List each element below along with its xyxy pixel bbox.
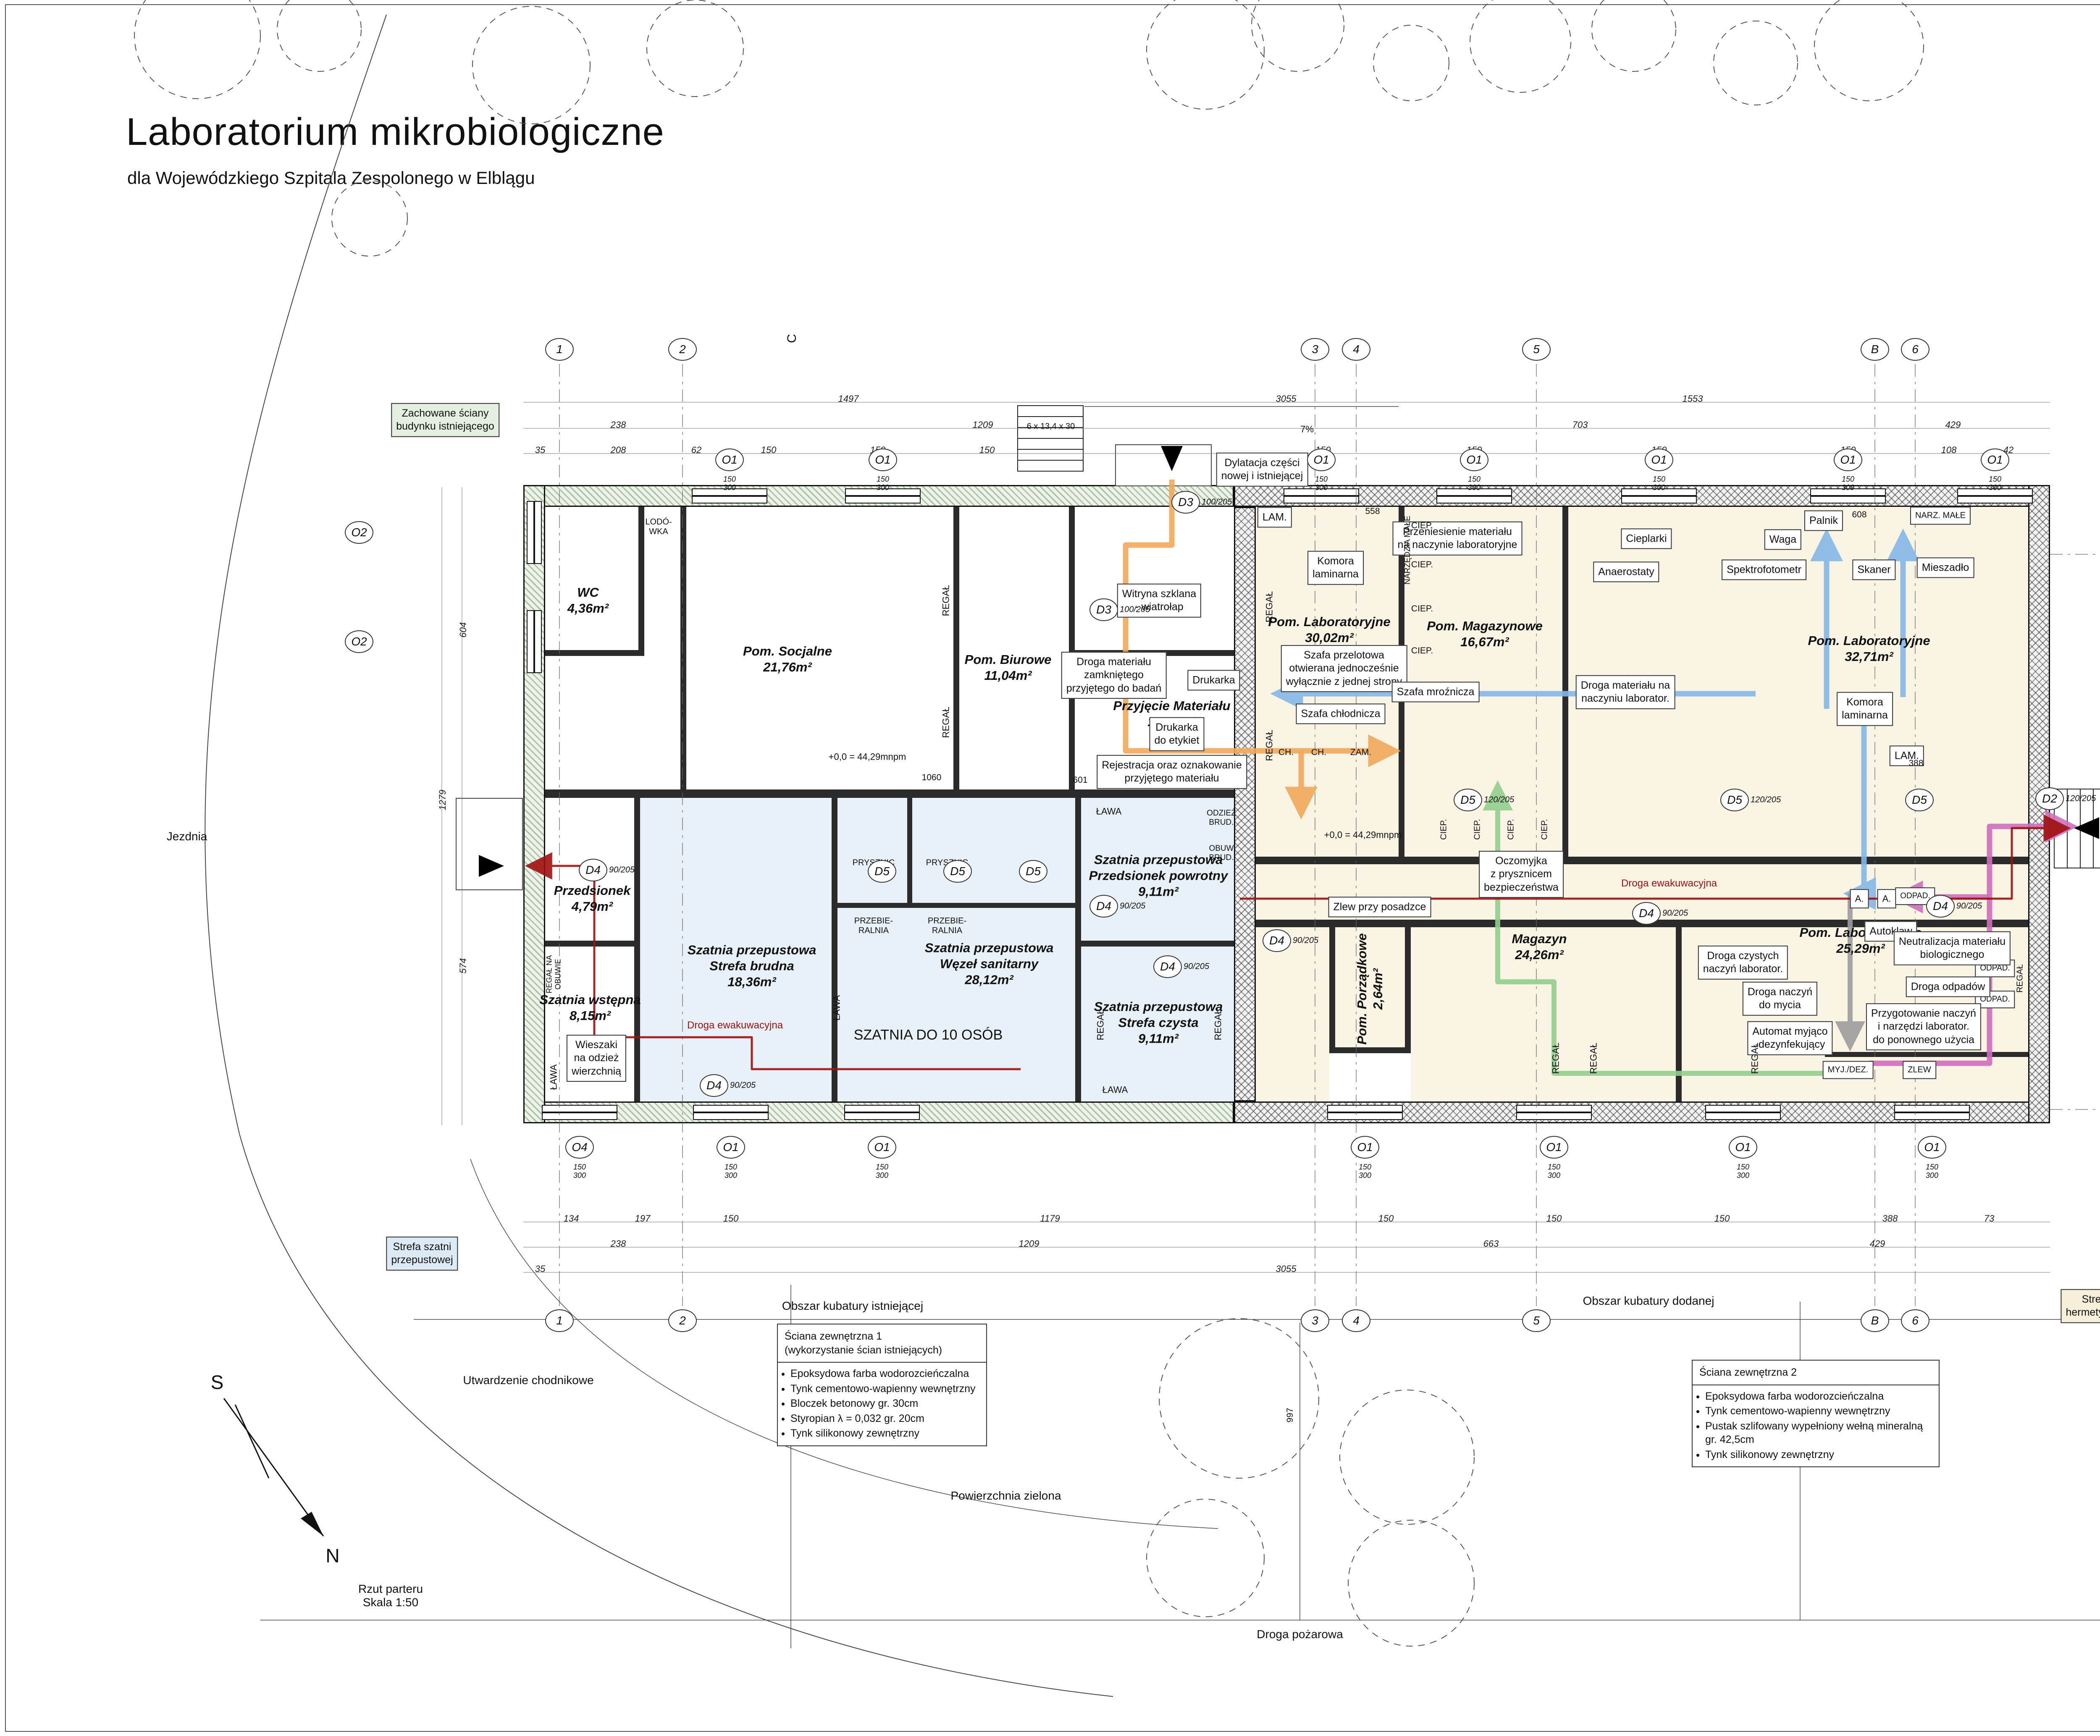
note-bullet: Tynk silikonowy zewnętrzny bbox=[790, 1427, 983, 1440]
partition bbox=[545, 650, 644, 656]
note2-title: Ściana zewnętrzna 2 bbox=[1693, 1361, 1939, 1385]
sheet: Laboratorium mikrobiologiczne dla Wojewó… bbox=[0, 0, 2100, 1736]
door-tag-D5: D5 bbox=[1454, 789, 1482, 811]
plan-label: PRZEBIE- RALNIA bbox=[854, 916, 893, 936]
plan-label: CIEP. bbox=[1411, 604, 1433, 614]
window-size: 150 300 bbox=[1315, 475, 1328, 492]
door-tag-D5: D5 bbox=[868, 860, 896, 883]
window-tag-O1: O1 bbox=[868, 1136, 896, 1159]
plan-label: ŁAWA bbox=[1096, 806, 1122, 816]
window-size: 150 300 bbox=[1842, 475, 1854, 492]
partition bbox=[953, 507, 959, 789]
room-wc bbox=[545, 507, 638, 655]
axis-6-top: 6 bbox=[1901, 338, 1929, 361]
note1-bullets: Epoksydowa farba wodorozcieńczalnaTynk c… bbox=[790, 1367, 983, 1440]
plan-label: ŁAWA bbox=[548, 1065, 559, 1090]
dimension: 150 bbox=[761, 445, 777, 456]
dimension: 134 bbox=[564, 1213, 579, 1224]
callout: A. bbox=[1877, 889, 1896, 908]
window-tag-O1: O1 bbox=[1729, 1136, 1757, 1159]
door-size: 90/205 bbox=[1120, 902, 1145, 911]
door-tag-D5: D5 bbox=[943, 860, 972, 883]
callout: A. bbox=[1850, 889, 1869, 908]
callout: Droga naczyń do mycia bbox=[1743, 982, 1817, 1016]
callout: Komora laminarna bbox=[1307, 551, 1364, 585]
plan-label: ŁAWA bbox=[1102, 1084, 1128, 1095]
partition bbox=[1075, 798, 1081, 1101]
door-size: 90/205 bbox=[1662, 909, 1688, 918]
dimension: 3055 bbox=[1276, 1264, 1297, 1274]
plan-label: 1060 bbox=[922, 773, 942, 783]
plan-label: Jezdnia bbox=[167, 830, 207, 843]
plan-label: Obszar kubatury istniejącej bbox=[782, 1299, 923, 1313]
callout: Anaerostaty bbox=[1593, 561, 1659, 582]
partition bbox=[1069, 507, 1075, 789]
dimension: 238 bbox=[611, 1238, 626, 1249]
window-tag-O1: O1 bbox=[1918, 1136, 1946, 1159]
plan-label: Droga ewakuwacyjna bbox=[1621, 878, 1717, 889]
callout: Palnik bbox=[1804, 510, 1843, 531]
partition bbox=[638, 507, 644, 655]
plan-label: REGAŁ bbox=[1588, 1043, 1599, 1074]
callout: Oczomyjka z prysznicem bezpieczeństwa bbox=[1479, 851, 1564, 898]
plan-label: PRZEBIE- RALNIA bbox=[928, 916, 966, 936]
callout: NARZ. MAŁE bbox=[1910, 507, 1971, 525]
note-bullet: Epoksydowa farba wodorozcieńczalna bbox=[790, 1367, 983, 1381]
room-label: Szatnia przepustowa Strefa czysta 9,11m² bbox=[1094, 999, 1223, 1046]
dimension: 150 bbox=[1378, 1213, 1394, 1224]
note-sciana-zewnetrzna-2: Ściana zewnętrzna 2 Epoksydowa farba wod… bbox=[1692, 1360, 1940, 1467]
window bbox=[527, 501, 542, 564]
room-label: Pom. Magazynowe 16,67m² bbox=[1427, 618, 1543, 650]
note-bullet: Styropian λ = 0,032 gr. 20cm bbox=[790, 1412, 983, 1426]
page-subtitle: dla Wojewódzkiego Szpitala Zespolonego w… bbox=[127, 168, 535, 188]
window-tag-O1: O1 bbox=[869, 448, 897, 471]
plan-label: 997 bbox=[1285, 1408, 1295, 1422]
partition bbox=[1405, 927, 1411, 1053]
plan-label: CIEP. bbox=[1411, 560, 1433, 570]
window bbox=[844, 1105, 920, 1120]
window-tag-O1: O1 bbox=[1981, 448, 2009, 471]
window-size: 150 300 bbox=[876, 1163, 888, 1180]
plan-label: CIEP. bbox=[1411, 521, 1433, 531]
callout: Strefa hermetyczna bbox=[2061, 1289, 2100, 1323]
axis-1-top: 1 bbox=[545, 338, 574, 361]
plan-label: CIEP. bbox=[1473, 819, 1483, 840]
note1-title: Ściana zewnętrzna 1 (wykorzystanie ścian… bbox=[778, 1324, 986, 1363]
partition bbox=[1329, 1047, 1411, 1053]
axis-5-top: 5 bbox=[1522, 338, 1551, 361]
partition bbox=[1825, 1052, 2028, 1057]
door-size: 120/205 bbox=[1484, 795, 1514, 805]
room-korytarz-poludnie bbox=[1256, 927, 1329, 1101]
window bbox=[542, 1105, 617, 1120]
callout: Automat myjąco -dezynfekujący bbox=[1747, 1021, 1832, 1055]
window-tag-O4: O4 bbox=[565, 1136, 594, 1159]
window-tag-O2: O2 bbox=[345, 521, 373, 544]
room-label: Szatnia przepustowa Przedsionek powrotny… bbox=[1089, 852, 1228, 899]
plan-label: REGAŁ bbox=[1749, 1043, 1760, 1074]
window bbox=[527, 610, 542, 673]
window-size: 150 300 bbox=[1737, 1163, 1749, 1180]
room-label: Pom. Biurowe 11,04m² bbox=[965, 652, 1052, 684]
note-bullet: Pustak szlifowany wypełniony wełną miner… bbox=[1705, 1419, 1935, 1447]
door-size: 90/205 bbox=[1956, 902, 1982, 911]
window bbox=[1894, 1105, 1970, 1120]
window bbox=[693, 1105, 769, 1120]
plan-label: REGAŁ bbox=[1264, 591, 1274, 623]
plan-label: OBUW BRUD. bbox=[1209, 844, 1234, 863]
dimension: 388 bbox=[1882, 1213, 1898, 1224]
plan-label: CH. bbox=[1311, 747, 1326, 758]
door-tag-D4: D4 bbox=[700, 1074, 728, 1097]
note-bullet: Bloczek betonowy gr. 30cm bbox=[790, 1397, 983, 1411]
room-pom-biurowe bbox=[959, 507, 1069, 789]
partition bbox=[1075, 941, 1234, 947]
stairs-top bbox=[1017, 405, 1084, 472]
window-tag-O1: O1 bbox=[1307, 448, 1336, 471]
window bbox=[1516, 1105, 1592, 1120]
door-tag-D4: D4 bbox=[1153, 955, 1182, 978]
plan-label: REGAŁ bbox=[2016, 964, 2025, 993]
plan-label: 608 bbox=[1852, 510, 1866, 520]
axis-2-top: 2 bbox=[668, 338, 697, 361]
callout: Waga bbox=[1764, 529, 1801, 550]
room-label: Szatnia przepustowa Węzeł sanitarny 28,1… bbox=[925, 940, 1054, 987]
window-tag-O1: O1 bbox=[1645, 448, 1673, 471]
window-tag-O1: O1 bbox=[1540, 1136, 1568, 1159]
partition bbox=[1329, 927, 1335, 1053]
partition bbox=[545, 941, 640, 947]
partition bbox=[1562, 507, 1568, 864]
callout: MYJ./DEZ. bbox=[1823, 1061, 1874, 1079]
section-mark-C: C bbox=[785, 334, 800, 343]
callout: Komora laminarna bbox=[1837, 692, 1893, 726]
plan-label: CH. bbox=[1278, 747, 1294, 758]
plan-label: ODZIEŻ BRUD. bbox=[1207, 809, 1236, 827]
callout: Szafa chłodnicza bbox=[1296, 703, 1385, 724]
axis-4-top: 4 bbox=[1342, 338, 1370, 361]
note-bullet: Tynk cementowo-wapienny wewnętrzny bbox=[1705, 1404, 1935, 1418]
plan-label: REGAŁ bbox=[1213, 1009, 1223, 1041]
callout: Szafa mroźnicza bbox=[1392, 682, 1480, 702]
plan-label: 7% bbox=[1300, 424, 1314, 434]
callout: Neutralizacja materiału biologicznego bbox=[1894, 931, 2011, 965]
window-size: 150 300 bbox=[723, 475, 736, 492]
plan-label: 601 bbox=[1073, 775, 1087, 785]
door-tag-D4: D4 bbox=[1263, 929, 1291, 952]
plan-label: 388 bbox=[1908, 758, 1923, 768]
axis-B-bottom: B bbox=[1861, 1309, 1889, 1332]
partition bbox=[837, 903, 1075, 908]
plan-label: CIEP. bbox=[1507, 819, 1516, 840]
dimension: 429 bbox=[1945, 420, 1961, 430]
plan-label: REGAŁ bbox=[1095, 1009, 1105, 1041]
plan-label: REGAŁ bbox=[940, 707, 951, 738]
partition bbox=[634, 798, 640, 1101]
dimension: 35 bbox=[535, 445, 545, 456]
door-size: 100/205 bbox=[1202, 498, 1232, 507]
door-tag-D3: D3 bbox=[1089, 598, 1118, 621]
dimension: 62 bbox=[691, 445, 701, 456]
callout: Droga materiału zamkniętego przyjętego d… bbox=[1061, 652, 1167, 699]
callout: Skaner bbox=[1852, 559, 1895, 580]
door-tag-D4: D4 bbox=[579, 859, 607, 881]
partition bbox=[1676, 927, 1682, 1101]
plan-label: Droga pożarowa bbox=[1257, 1628, 1343, 1641]
plan-label: 6 x 13,4 x 30 bbox=[1027, 422, 1075, 432]
dimension: 1497 bbox=[838, 393, 859, 404]
callout: Zachowane ściany budynku istniejącego bbox=[391, 403, 499, 437]
plan-label: CIEP. bbox=[1439, 819, 1449, 840]
vestibule-wiatrolap bbox=[1115, 444, 1212, 486]
plan-label: CIEP. bbox=[1411, 646, 1433, 656]
dimension: 150 bbox=[723, 1213, 739, 1224]
dimension: 197 bbox=[635, 1213, 651, 1224]
door-size: 90/205 bbox=[730, 1081, 756, 1091]
plan-label: REGAŁ bbox=[1550, 1043, 1561, 1074]
wall bbox=[523, 485, 545, 1123]
callout: Przygotowanie naczyń i narzędzi laborato… bbox=[1866, 1003, 1981, 1050]
room-label: Magazyn 24,26m² bbox=[1512, 931, 1567, 963]
axis-1-bottom: 1 bbox=[545, 1309, 574, 1332]
callout: Rejestracja oraz oznakowanie przyjętego … bbox=[1097, 755, 1247, 789]
dimension: 150 bbox=[1546, 1213, 1562, 1224]
callout: Zlew przy posadzce bbox=[1328, 897, 1431, 917]
room-label: Pom. Laboratoryjne 32,71m² bbox=[1808, 633, 1930, 665]
page-title: Laboratorium mikrobiologiczne bbox=[126, 110, 664, 154]
plan-label: REGAŁ NA OBUWIE bbox=[545, 955, 562, 993]
note-sciana-zewnetrzna-1: Ściana zewnętrzna 1 (wykorzystanie ścian… bbox=[777, 1324, 987, 1446]
door-tag-D2: D2 bbox=[2035, 787, 2064, 810]
callout: Szafa przelotowa otwierana jednocześnie … bbox=[1281, 645, 1407, 692]
plan-label: N bbox=[325, 1545, 339, 1567]
plan-label: Droga ewakuwacyjna bbox=[687, 1020, 783, 1031]
door-size: 90/205 bbox=[609, 865, 635, 875]
door-size: 100/205 bbox=[1120, 605, 1150, 615]
window-size: 150 300 bbox=[877, 475, 889, 492]
dimension: 574 bbox=[458, 958, 469, 974]
plan-label: Powierzchnia zielona bbox=[950, 1489, 1061, 1503]
window-size: 150 300 bbox=[724, 1163, 737, 1180]
window-size: 150 300 bbox=[1468, 475, 1480, 492]
axis-4-bottom: 4 bbox=[1342, 1309, 1370, 1332]
door-tag-D3: D3 bbox=[1171, 491, 1200, 514]
note-bullet: Tynk cementowo-wapienny wewnętrzny bbox=[790, 1382, 983, 1396]
plan-label: Rzut parteru Skala 1:50 bbox=[358, 1582, 423, 1609]
callout: Spektrofotometr bbox=[1722, 559, 1806, 580]
callout: Droga czystych naczyń laborator. bbox=[1698, 946, 1788, 980]
room-label: Pom. Laboratoryjne 30,02m² bbox=[1268, 614, 1390, 646]
callout: Cieplarki bbox=[1621, 528, 1672, 549]
dimension: 150 bbox=[979, 445, 995, 456]
plan-label: SZATNIA DO 10 OSÓB bbox=[854, 1027, 1003, 1043]
partition bbox=[680, 507, 686, 789]
window bbox=[1327, 1105, 1403, 1120]
axis-3-top: 3 bbox=[1301, 338, 1329, 361]
door-tag-D4: D4 bbox=[1089, 895, 1118, 918]
axis-5-bottom: 5 bbox=[1522, 1309, 1551, 1332]
dimension: 208 bbox=[611, 445, 626, 456]
dimension: 1279 bbox=[437, 790, 448, 810]
axis-6-bottom: 6 bbox=[1901, 1309, 1929, 1332]
room-label: WC 4,36m² bbox=[567, 585, 609, 616]
window-tag-O2: O2 bbox=[345, 630, 373, 653]
room-label: Pom. Porządkowe 2,64m² bbox=[1354, 933, 1386, 1044]
room-label: Szatnia wstępna 8,15m² bbox=[539, 992, 640, 1024]
dimension: 3055 bbox=[1276, 393, 1297, 404]
room-label: Przedsionek 4,79m² bbox=[554, 883, 631, 915]
plan-label: NARZĘDZIA MAŁE bbox=[1403, 516, 1412, 585]
dimension: 604 bbox=[458, 622, 469, 638]
callout: Mieszadło bbox=[1917, 557, 1974, 578]
door-tag-D4: D4 bbox=[1926, 895, 1955, 918]
window-tag-O1: O1 bbox=[1834, 448, 1862, 471]
wall bbox=[1234, 507, 1256, 1101]
entrance-platform bbox=[456, 798, 523, 890]
dimension: 238 bbox=[611, 420, 626, 430]
partition bbox=[1256, 857, 2028, 864]
door-size: 120/205 bbox=[2066, 794, 2096, 804]
dimension: 73 bbox=[1984, 1213, 1994, 1224]
plan-label: Obszar kubatury dodanej bbox=[1583, 1294, 1714, 1308]
plan-label: REGAŁ bbox=[1264, 730, 1274, 761]
plan-label: CIEP. bbox=[1540, 819, 1550, 840]
dimension: 1209 bbox=[973, 420, 993, 430]
callout: Droga odpadów bbox=[1906, 976, 1990, 997]
axis-3-bottom: 3 bbox=[1301, 1309, 1329, 1332]
dimension: 663 bbox=[1483, 1238, 1499, 1249]
callout: LAM. bbox=[1257, 507, 1292, 527]
partition bbox=[545, 789, 1234, 798]
plan-label: ŁAWA bbox=[831, 995, 842, 1021]
callout: Droga materiału na naczyniu laborator. bbox=[1576, 675, 1675, 709]
window-size: 150 300 bbox=[573, 1163, 586, 1180]
door-tag-D4: D4 bbox=[1632, 902, 1661, 925]
dimension: 1553 bbox=[1683, 393, 1703, 404]
dimension: 108 bbox=[1941, 445, 1957, 456]
axis-B-top: B bbox=[1861, 338, 1889, 361]
window-size: 150 300 bbox=[1653, 475, 1665, 492]
window-tag-O1: O1 bbox=[715, 448, 744, 471]
window-size: 150 300 bbox=[1548, 1163, 1560, 1180]
dimension: 35 bbox=[535, 1264, 545, 1274]
plan-label: +0,0 = 44,29mnpm bbox=[1324, 829, 1402, 840]
window bbox=[1705, 1105, 1781, 1120]
callout: ZLEW bbox=[1903, 1061, 1936, 1079]
plan-label: LODÓ- WKA bbox=[645, 517, 672, 537]
partition bbox=[907, 798, 912, 903]
plan-label: Utwardzenie chodnikowe bbox=[463, 1374, 593, 1387]
window-tag-O1: O1 bbox=[717, 1136, 745, 1159]
window-tag-O1: O1 bbox=[1460, 448, 1488, 471]
dimension: 703 bbox=[1572, 420, 1588, 430]
door-tag-D5: D5 bbox=[1019, 860, 1047, 883]
plan-label: +0,0 = 44,29mnpm bbox=[829, 751, 906, 762]
window-size: 150 300 bbox=[1926, 1163, 1938, 1180]
window-tag-O1: O1 bbox=[1351, 1136, 1379, 1159]
door-tag-D5: D5 bbox=[1905, 789, 1934, 811]
plan-label: REGAŁ bbox=[940, 585, 951, 616]
note-bullet: Tynk silikonowy zewnętrzny bbox=[1705, 1448, 1935, 1462]
window-size: 150 300 bbox=[1359, 1163, 1371, 1180]
room-wiatrolap bbox=[1075, 507, 1234, 650]
door-tag-D5: D5 bbox=[1720, 789, 1749, 811]
plan-label: S bbox=[211, 1371, 224, 1394]
callout: Strefa szatni przepustowej bbox=[386, 1237, 458, 1271]
partition bbox=[832, 798, 837, 1101]
dimension: 150 bbox=[1714, 1213, 1730, 1224]
dimension: 1179 bbox=[1040, 1213, 1060, 1224]
axis-2-bottom: 2 bbox=[668, 1309, 697, 1332]
callout: Drukarka do etykiet bbox=[1149, 717, 1204, 751]
door-size: 120/205 bbox=[1751, 795, 1781, 805]
callout: Dylatacja części nowej i istniejącej bbox=[1216, 453, 1308, 487]
room-label: Pom. Socjalne 21,76m² bbox=[743, 643, 832, 675]
plan-label: 558 bbox=[1365, 506, 1380, 517]
callout: Drukarka bbox=[1187, 670, 1240, 690]
dimension: 1209 bbox=[1019, 1238, 1039, 1249]
note-bullet: Epoksydowa farba wodorozcieńczalna bbox=[1705, 1390, 1935, 1403]
note2-bullets: Epoksydowa farba wodorozcieńczalnaTynk c… bbox=[1705, 1390, 1935, 1462]
plan-label: ZAM. bbox=[1350, 747, 1371, 758]
door-size: 90/205 bbox=[1293, 936, 1318, 946]
dimension: 429 bbox=[1870, 1238, 1885, 1249]
callout: Wieszaki na odzież wierzchnią bbox=[567, 1035, 626, 1082]
door-size: 90/205 bbox=[1184, 962, 1209, 972]
room-label: Szatnia przepustowa Strefa brudna 18,36m… bbox=[688, 942, 816, 989]
window-size: 150 300 bbox=[1989, 475, 2001, 492]
